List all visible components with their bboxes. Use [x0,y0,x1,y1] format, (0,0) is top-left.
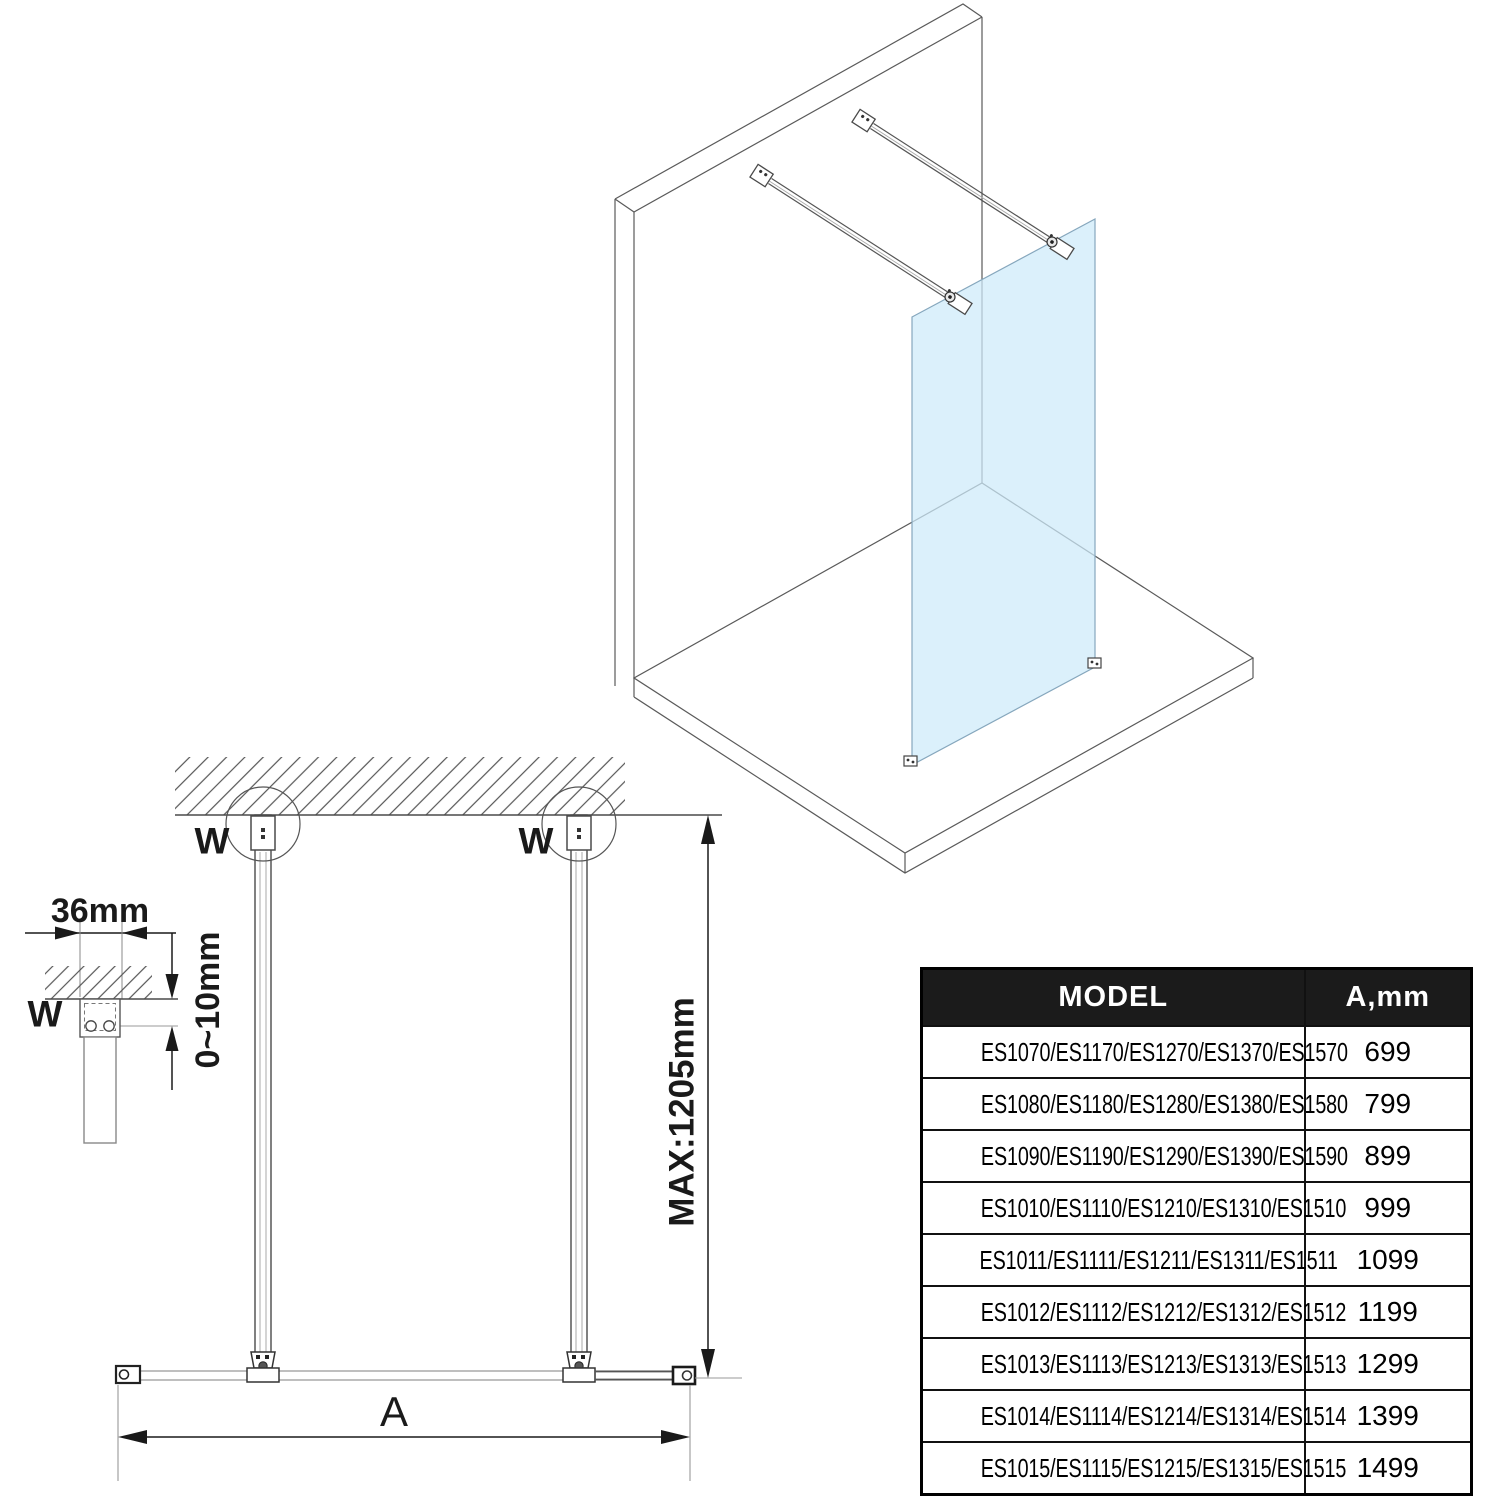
wall-marker-left: W [195,823,230,860]
max-height-label: MAX:1205mm [665,997,700,1227]
max-height-dimension [695,815,742,1378]
glass-foot-right [1088,658,1101,668]
support-bar-left-2d [251,815,275,1355]
support-bar-right-2d [567,815,591,1355]
model-cell: ES1015/ES1115/ES1215/ES1315/ES1515 [981,1453,1346,1484]
wall-marker-right: W [519,823,554,860]
front-view [20,745,760,1490]
header-model: MODEL [922,969,1305,1027]
model-cell: ES1070/ES1170/ES1270/ES1370/ES1570 [981,1037,1348,1068]
table-row: ES1080/ES1180/ES1280/ES1380/ES1580 799 [922,1078,1472,1130]
table-row: ES1011/ES1111/ES1211/ES1311/ES1511 1099 [922,1234,1472,1286]
model-cell: ES1011/ES1111/ES1211/ES1311/ES1511 [980,1245,1338,1276]
table-row: ES1012/ES1112/ES1212/ES1312/ES1512 1199 [922,1286,1472,1338]
support-bar-front [768,179,951,300]
glass-connector-left [247,1352,279,1382]
table-row: ES1010/ES1110/ES1210/ES1310/ES1510 999 [922,1182,1472,1234]
header-a-mm: A,mm [1305,969,1472,1027]
installation-diagram-page: 36mm W 0~10mm W W MAX:1205mm A MODEL A,m… [0,0,1500,1500]
model-cell: ES1012/ES1112/ES1212/ES1312/ES1512 [981,1297,1346,1328]
ceiling-hatch [175,757,625,815]
model-cell: ES1010/ES1110/ES1210/ES1310/ES1510 [981,1193,1346,1224]
support-bar-back [870,124,1053,245]
wall-link-bar [595,1367,695,1384]
table-row: ES1015/ES1115/ES1215/ES1315/ES1515 1499 [922,1442,1472,1495]
table-header-row: MODEL A,mm [922,969,1472,1027]
table-row: ES1070/ES1170/ES1270/ES1370/ES1570 699 [922,1026,1472,1078]
model-spec-table: MODEL A,mm ES1070/ES1170/ES1270/ES1370/E… [920,967,1473,1496]
wall-marker-inset: W [28,996,63,1033]
glass-width-label: A [380,1391,408,1433]
model-cell: ES1014/ES1114/ES1214/ES1314/ES1514 [981,1401,1346,1432]
table-row: ES1090/ES1190/ES1290/ES1390/ES1590 899 [922,1130,1472,1182]
table-row: ES1013/ES1113/ES1213/ES1313/ES1513 1299 [922,1338,1472,1390]
wall-bracket-front [750,164,773,186]
model-cell: ES1013/ES1113/ES1213/ES1313/ES1513 [981,1349,1346,1380]
table-row: ES1014/ES1114/ES1214/ES1314/ES1514 1399 [922,1390,1472,1442]
glass-foot-left [904,756,917,766]
model-cell: ES1080/ES1180/ES1280/ES1380/ES1580 [981,1089,1348,1120]
glass-edge-2d [116,1366,695,1383]
ceiling-gap-label: 0~10mm [191,931,225,1068]
model-cell: ES1090/ES1190/ES1290/ES1390/ES1590 [981,1141,1348,1172]
bracket-width-label: 36mm [51,894,149,928]
wall-bracket-back [852,109,875,131]
glass-connector-right [563,1352,595,1382]
